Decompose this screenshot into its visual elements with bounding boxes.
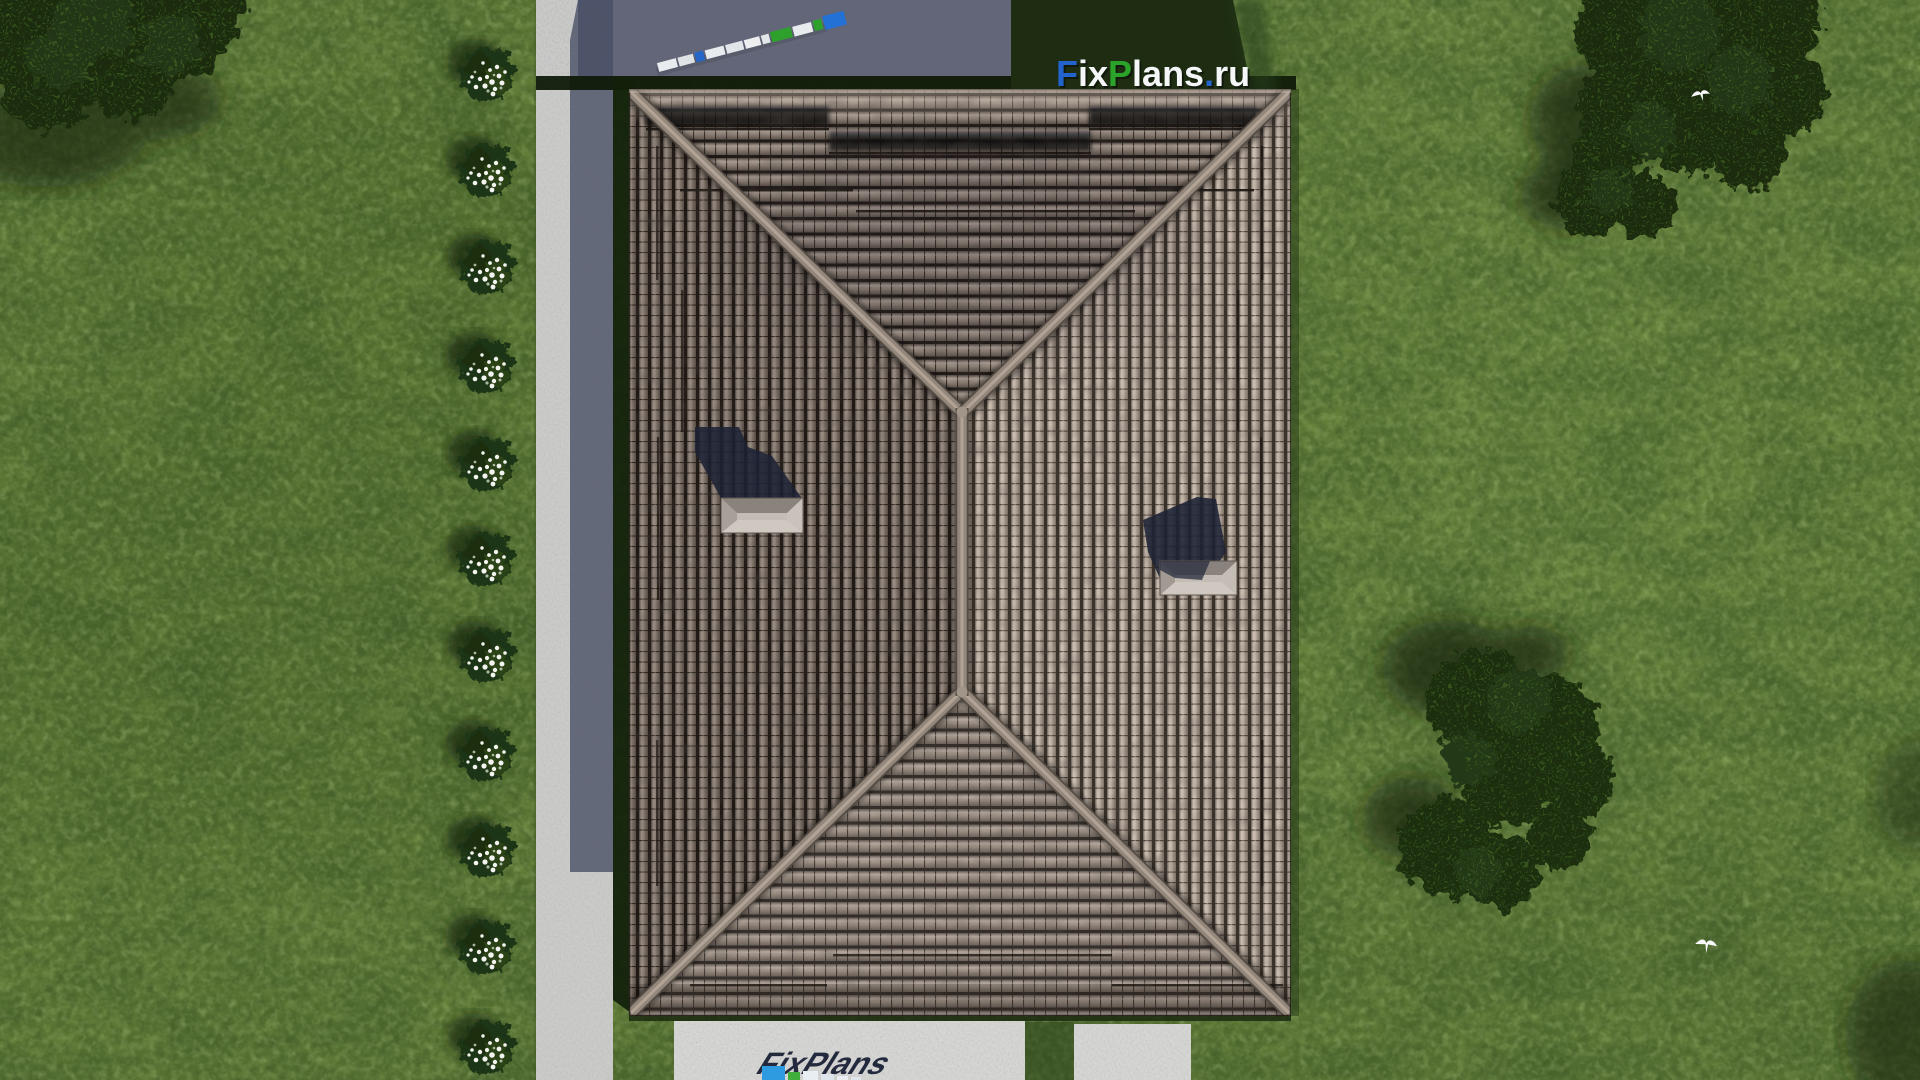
svg-text:FixPlans.ru: FixPlans.ru xyxy=(1056,53,1250,94)
